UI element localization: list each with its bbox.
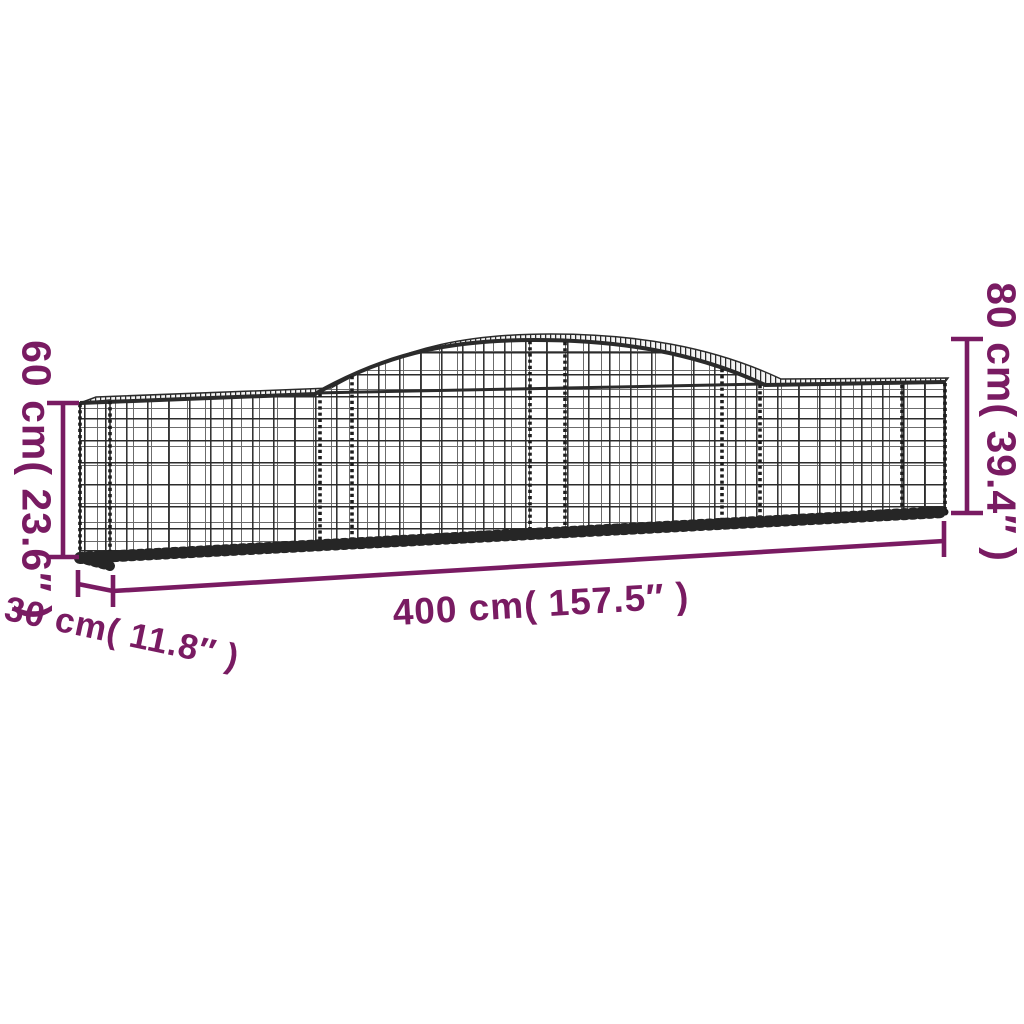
- dimension-depth-line: [78, 570, 113, 597]
- diagram-canvas: 60 cm( 23.6″ ) 80 cm( 39.4″ ) 400 cm( 15…: [0, 0, 1024, 1024]
- gabion-basket-drawing: [0, 0, 1024, 1024]
- height-left-label: 60 cm( 23.6″ ): [16, 340, 57, 620]
- left-end-panel: [80, 400, 110, 566]
- right-end-panel: [902, 382, 945, 514]
- mesh-front-layer: [80, 340, 945, 558]
- height-right-label: 80 cm( 39.4″ ): [981, 282, 1022, 562]
